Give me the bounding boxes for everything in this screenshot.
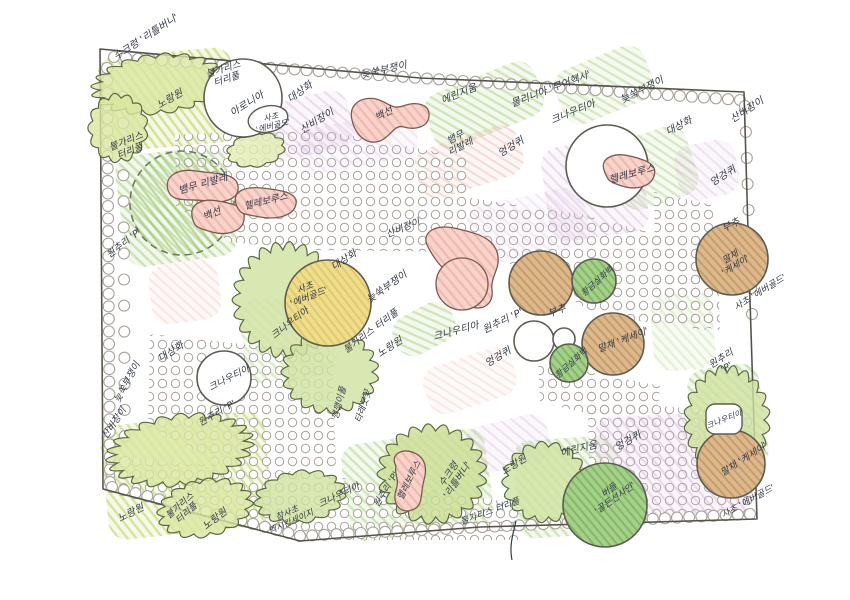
edge-paving-circle [103, 201, 114, 212]
edge-paving-circle [104, 351, 115, 362]
edge-paving-circle [103, 301, 114, 312]
edge-paving-circle [392, 526, 403, 537]
edge-paving-circle [742, 179, 753, 190]
edge-paving-circle [103, 326, 114, 337]
edge-paving-circle [118, 196, 129, 207]
edge-paving-circle [747, 309, 758, 320]
edge-paving-circle [118, 170, 129, 181]
edge-paving-circle [102, 175, 113, 186]
edge-paving-circle [103, 313, 114, 324]
edge-paving-circle [674, 90, 685, 101]
edge-paving-circle [710, 93, 721, 104]
edge-paving-circle [104, 339, 115, 350]
edge-paving-circle [518, 80, 529, 91]
edge-paving-circle [102, 163, 113, 174]
edge-paving-circle [313, 66, 324, 77]
edge-paving-circle [723, 94, 734, 105]
edge-paving-circle [506, 79, 517, 90]
edge-paving-circle [325, 66, 336, 77]
edge-paving-circle [404, 525, 415, 536]
edge-paving-circle [743, 205, 754, 216]
edge-paving-circle [119, 300, 130, 311]
pencil-shading-patch [146, 257, 224, 326]
perennial-circle-symbol [436, 258, 488, 310]
edge-paving-circle [104, 376, 115, 387]
edge-paving-circle [119, 326, 130, 337]
edge-paving-circle [103, 213, 114, 224]
edge-paving-circle [102, 188, 113, 199]
edge-paving-circle [745, 509, 756, 520]
edge-paving-circle [698, 92, 709, 103]
edge-paving-circle [349, 68, 360, 79]
planting-plan-drawing: 수크령 '리틀버니'노랑원불가리스터리풀아로니아사초'에버골드'대상화산비장이늦… [0, 0, 850, 600]
planting-plan-canvas: 수크령 '리틀버니'노랑원불가리스터리풀아로니아사초'에버골드'대상화산비장이늦… [0, 0, 850, 600]
edge-paving-circle [103, 276, 114, 287]
edge-paving-circle [494, 78, 505, 89]
edge-paving-circle [103, 226, 114, 237]
edge-paving-circle [686, 91, 697, 102]
edge-paving-circle [103, 263, 114, 274]
edge-paving-circle [482, 77, 493, 88]
tree-symbol [514, 321, 554, 361]
edge-paving-circle [104, 401, 115, 412]
edge-paving-circle [103, 288, 114, 299]
edge-paving-circle [337, 67, 348, 78]
edge-paving-circle [301, 65, 312, 76]
edge-paving-circle [119, 274, 130, 285]
edge-paving-circle [662, 90, 673, 101]
edge-paving-circle [119, 352, 130, 363]
edge-paving-circle [118, 222, 129, 233]
edge-paving-circle [104, 364, 115, 375]
edge-paving-circle [380, 526, 391, 537]
edge-paving-circle [416, 525, 427, 536]
